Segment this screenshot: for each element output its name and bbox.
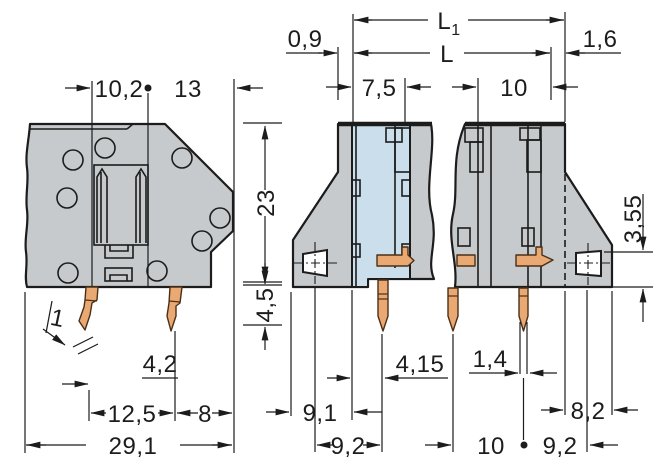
dimension-label-9-2-right: 9,2 (543, 433, 578, 460)
dimension-l: L (354, 41, 550, 68)
dimension-23: 23 (253, 126, 280, 280)
dimension-label-8: 8 (198, 401, 212, 428)
technical-drawing-page: L1 L 0,9 1,6 7,5 10 10,2 13 23 (0, 0, 670, 476)
dimension-9-2-right: 9,2 (543, 433, 618, 460)
dimension-label-3-55: 3,55 (620, 195, 647, 244)
dimension-label-4-15: 4,15 (396, 351, 445, 378)
dimension-label-10-2: 10,2 (95, 76, 144, 103)
dimension-13: 13 (174, 76, 263, 103)
dimension-4-2: 4,2 (142, 351, 178, 378)
dimension-29-1: 29,1 (26, 433, 232, 460)
dimension-10-top: 10 (452, 75, 578, 102)
dimension-label-1-4: 1,4 (473, 346, 508, 373)
dimension-7-5: 7,5 (326, 75, 431, 102)
dimension-label-4-2: 4,2 (143, 351, 178, 378)
dimension-12-5: 12,5 (91, 401, 173, 428)
dimension-label-13: 13 (174, 76, 202, 103)
contact-bar (457, 255, 475, 266)
dimension-l1: L1 (354, 8, 564, 39)
section-view-7-5mm (293, 124, 434, 331)
dimension-label-12-5: 12,5 (108, 401, 157, 428)
dimension-8: 8 (177, 401, 232, 428)
dimension-dot (521, 442, 528, 449)
dimension-8-2: 8,2 (541, 398, 638, 425)
solder-pin (167, 287, 182, 331)
dimension-4-15: 4,15 (327, 351, 448, 378)
dimension-label-23: 23 (253, 189, 280, 217)
solder-pin (378, 280, 388, 331)
dimension-9-2-left: 9,2 (317, 433, 380, 460)
dimension-10-2: 10,2 (65, 76, 152, 103)
dimension-label-7-5: 7,5 (362, 75, 397, 102)
dimension-4-5: 4,5 (252, 263, 279, 350)
dimension-1-4: 1,4 (469, 346, 557, 373)
dimension-label-10-bottom: 10 (477, 433, 505, 460)
dimension-label-0-9: 0,9 (288, 26, 323, 53)
dimension-label-9-1: 9,1 (303, 400, 338, 427)
dimension-label-8-2: 8,2 (571, 398, 606, 425)
housing-outline (26, 124, 233, 287)
dimension-label-9-2-left: 9,2 (331, 433, 366, 460)
dimension-0-9: 0,9 (286, 26, 337, 53)
side-view (26, 124, 233, 331)
dimension-label-4-5: 4,5 (252, 288, 279, 323)
dimension-label-l: L (440, 41, 454, 68)
dimension-dot (145, 85, 152, 92)
dimension-label-1-6: 1,6 (583, 26, 618, 53)
solder-pin (79, 287, 98, 330)
dimension-10-bottom: 10 (425, 433, 528, 460)
dimension-9-1: 9,1 (266, 400, 382, 427)
solder-pin (448, 288, 458, 331)
dimension-label-l1: L1 (437, 8, 460, 39)
dimension-1-6: 1,6 (566, 26, 621, 53)
terminal-block-dimension-drawing: L1 L 0,9 1,6 7,5 10 10,2 13 23 (0, 0, 670, 476)
dimension-label-10-top: 10 (500, 75, 528, 102)
dimension-label-29-1: 29,1 (109, 433, 158, 460)
dimension-3-55: 3,55 (620, 194, 647, 322)
